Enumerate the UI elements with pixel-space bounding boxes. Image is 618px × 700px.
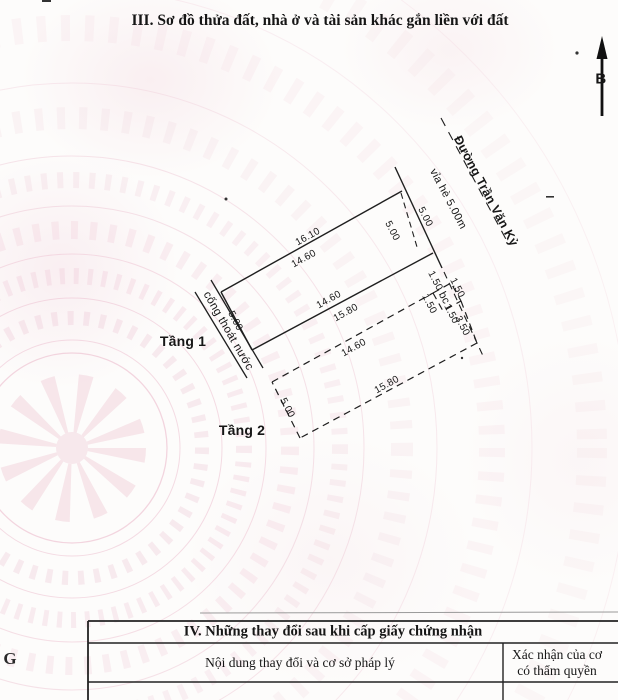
table-col-content-header: Nội dung thay đổi và cơ sở pháp lý <box>205 655 395 671</box>
floor1-label: Tầng 1 <box>160 333 206 349</box>
north-label: B <box>595 71 606 88</box>
plot-diagram-lines <box>0 0 618 700</box>
scan-specks <box>42 0 579 359</box>
table-col-confirm-header-line1: Xác nhận của cơ <box>512 647 602 663</box>
floor1-outline <box>221 191 433 350</box>
floor2-label: Tầng 2 <box>219 422 265 438</box>
certificate-page: III. Sơ đồ thửa đất, nhà ở và tài sản kh… <box>0 0 618 700</box>
section3-title: III. Sơ đồ thửa đất, nhà ở và tài sản kh… <box>131 12 508 30</box>
margin-letter: G <box>3 649 16 669</box>
table-col-confirm-header-line2: có thẩm quyền <box>517 663 596 679</box>
section4-title: IV. Những thay đổi sau khi cấp giấy chứn… <box>184 624 482 641</box>
frontage-dashed-segment <box>401 193 417 247</box>
